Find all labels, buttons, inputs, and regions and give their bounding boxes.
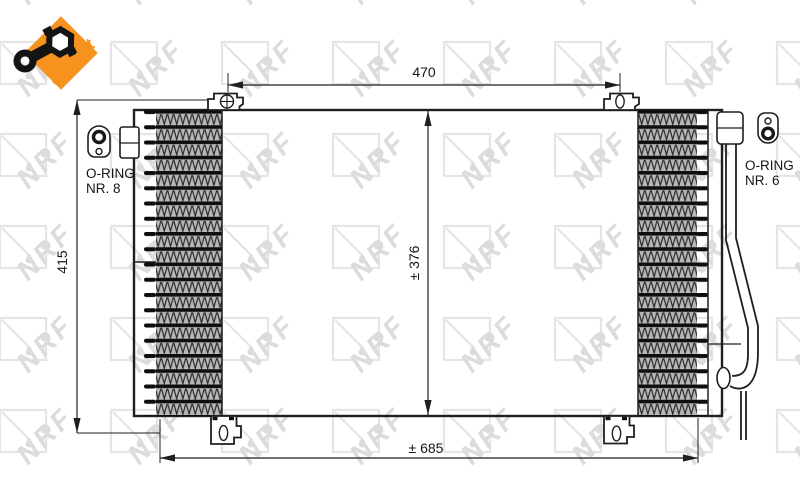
left-oring-label-line2: NR. 8 — [86, 181, 121, 196]
dimension-core-height: ± 376 — [406, 111, 432, 415]
bottom-left-bracket — [211, 416, 241, 444]
right-oring-label-line1: O-RING — [745, 158, 794, 173]
right-connector-block — [717, 112, 743, 144]
dim-685-label: ± 685 — [409, 440, 444, 456]
dim-470-label: 470 — [412, 64, 436, 80]
nrf-easyfit-logo: easyfit — [0, 0, 140, 125]
dim-376-label: ± 376 — [406, 245, 422, 280]
dimension-top-width: 470 — [228, 64, 620, 92]
top-left-bracket — [208, 94, 243, 111]
right-fin-block — [638, 110, 697, 416]
dim-415-label: 415 — [54, 250, 70, 274]
top-right-bracket — [604, 94, 639, 111]
right-oring-label-line2: NR. 6 — [745, 173, 780, 188]
left-tube-stubs — [144, 110, 157, 416]
right-tube-stubs — [697, 110, 708, 416]
left-fin-block — [156, 110, 222, 416]
right-oring-fitting-icon — [758, 113, 778, 143]
left-oring-fitting-icon — [88, 126, 110, 157]
left-oring-label-line1: O-RING — [86, 166, 135, 181]
catalog-technical-drawing-page: NRF 415 — [0, 0, 800, 481]
bottom-right-bracket — [604, 416, 634, 444]
left-connector-block — [120, 127, 139, 158]
